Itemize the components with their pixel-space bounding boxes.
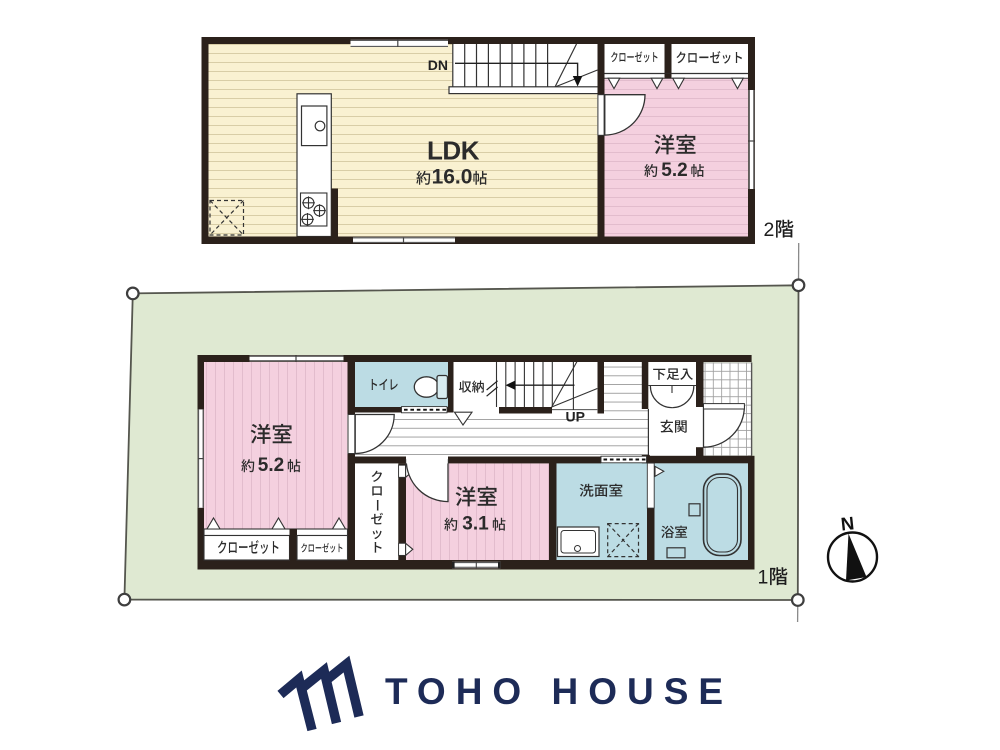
svg-text:LDK: LDK <box>427 136 480 166</box>
svg-text:2: 2 <box>764 219 775 241</box>
svg-text:UP: UP <box>566 409 585 425</box>
svg-text:5.2: 5.2 <box>258 455 284 476</box>
svg-text:DN: DN <box>428 57 448 73</box>
svg-text:1: 1 <box>758 567 769 589</box>
svg-text:3.1: 3.1 <box>462 514 489 535</box>
svg-text:5.2: 5.2 <box>661 160 687 181</box>
svg-text:TOHO HOUSE: TOHO HOUSE <box>385 671 733 712</box>
svg-text:N: N <box>840 512 855 534</box>
svg-text:16.0: 16.0 <box>432 166 473 189</box>
